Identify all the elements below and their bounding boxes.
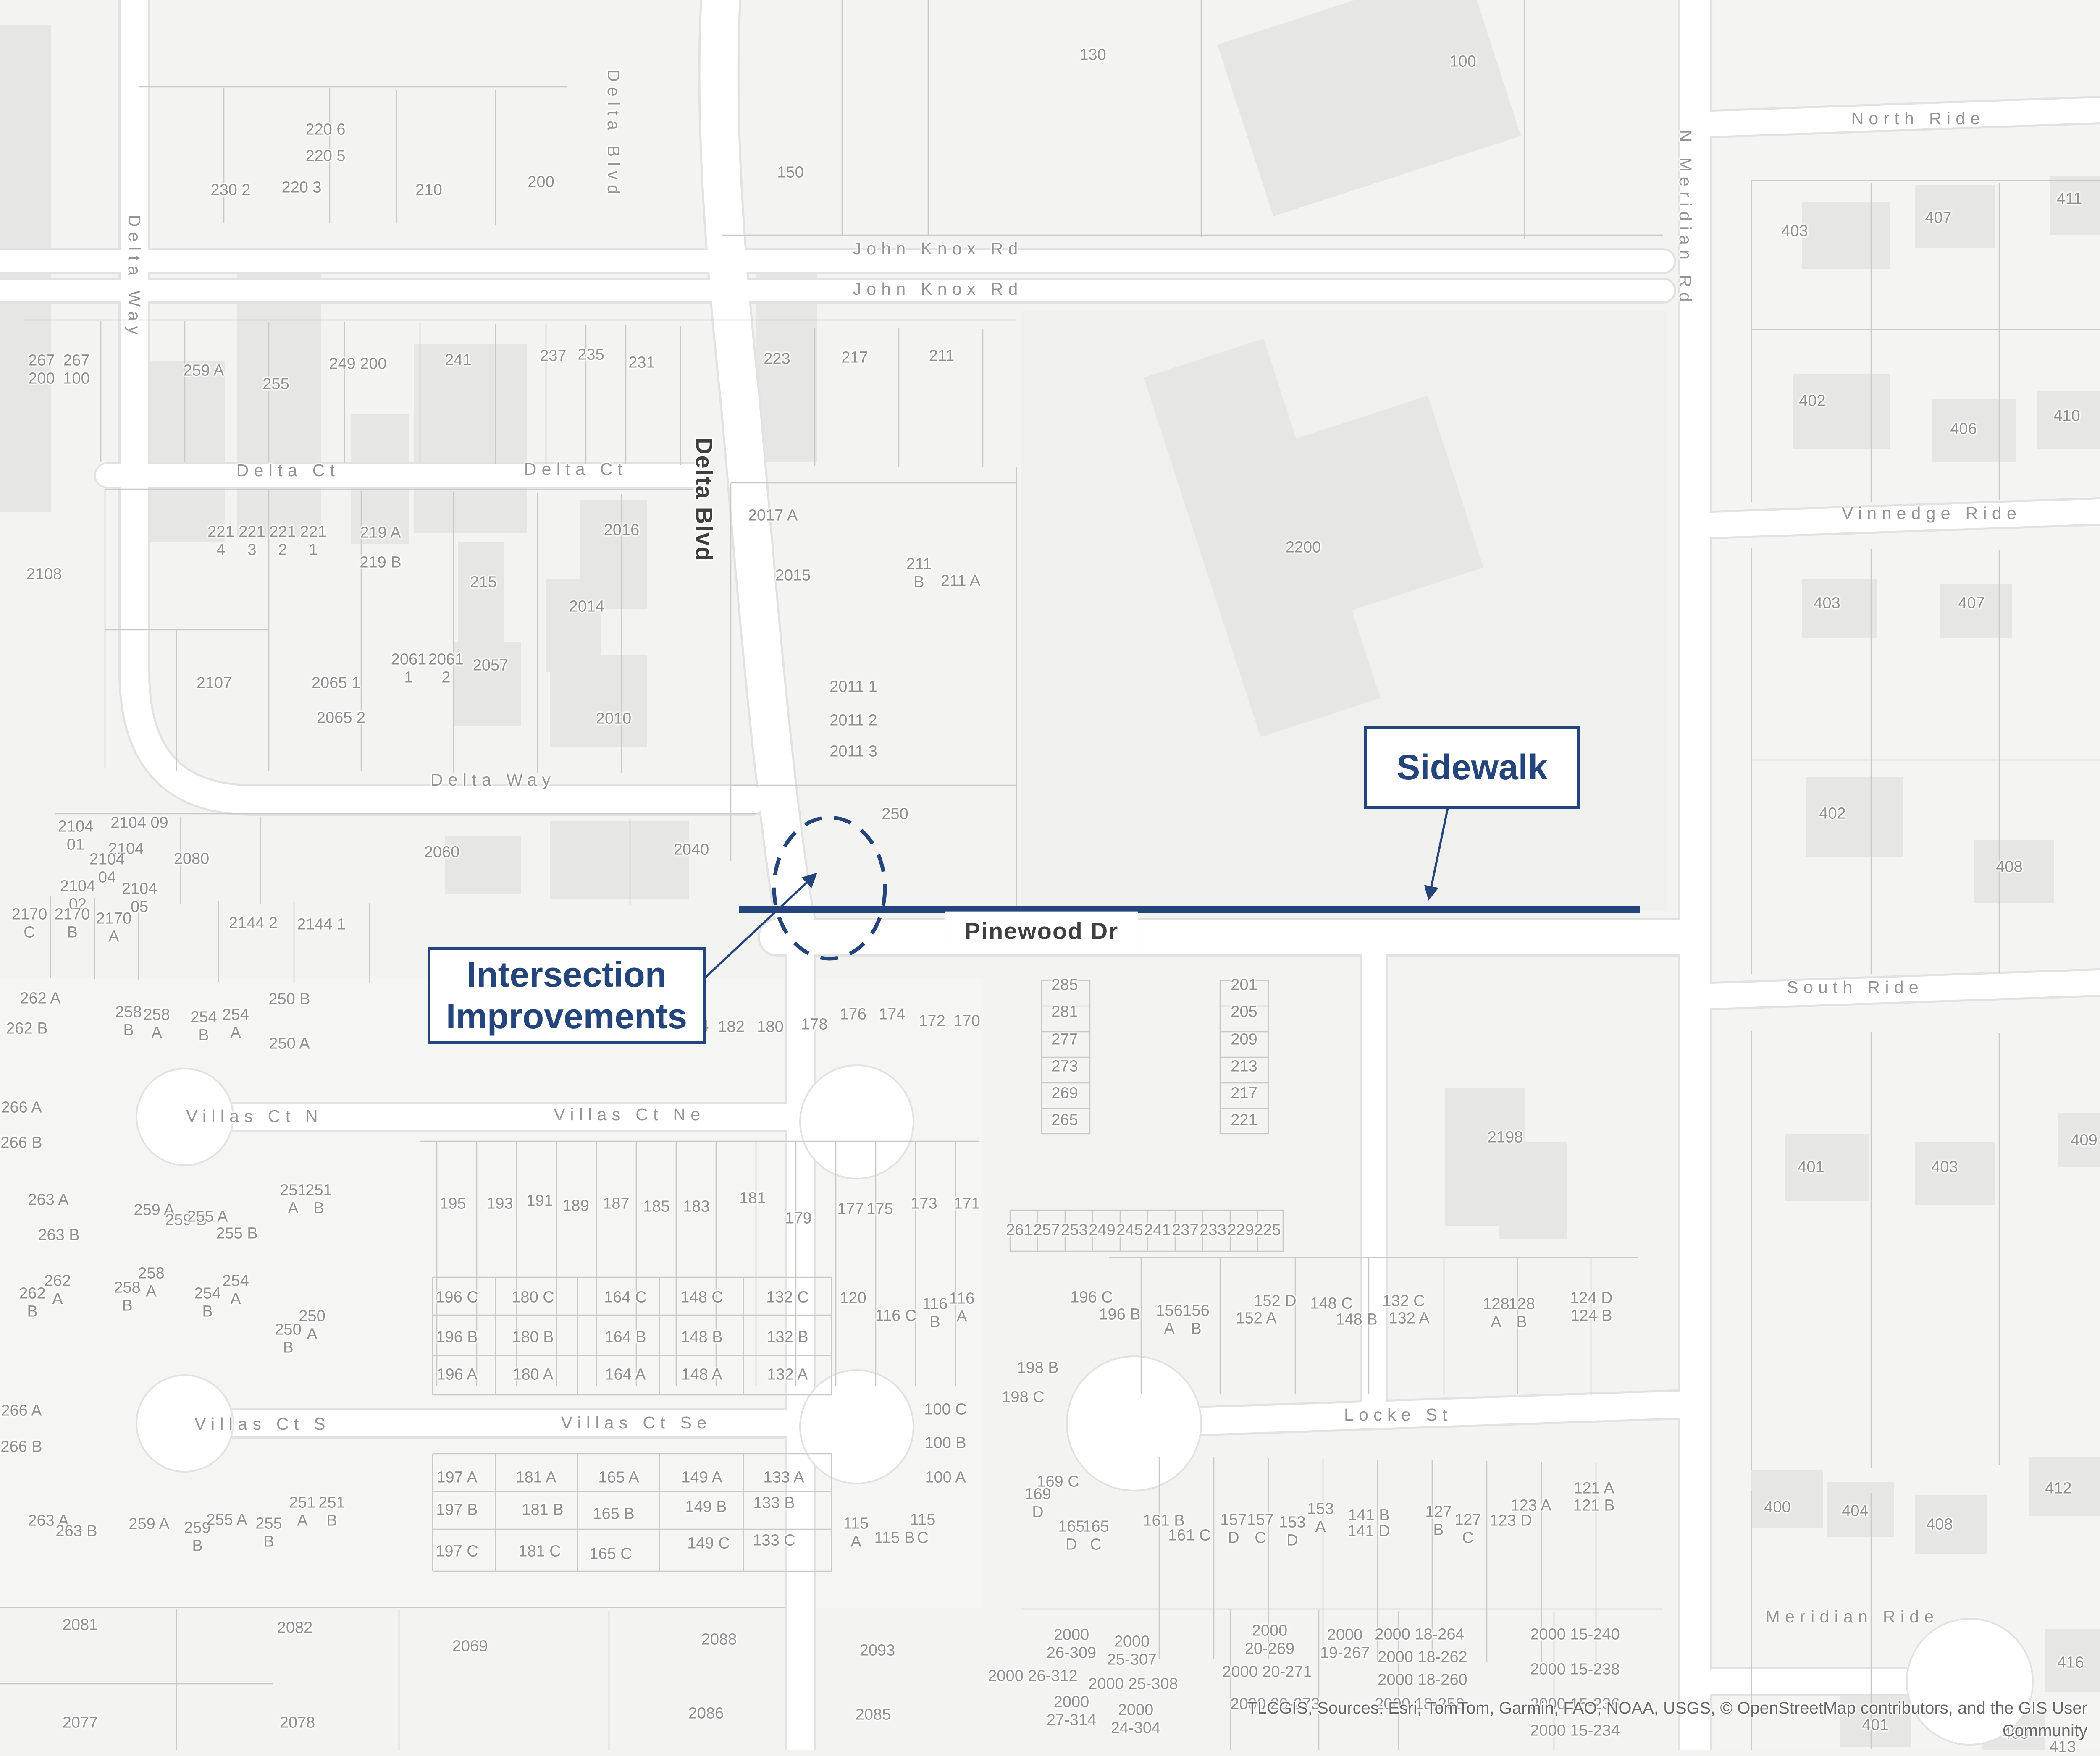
attribution-line1: TLCGIS, Sources: Esri, TomTom, Garmin, F… (1247, 1699, 2087, 1717)
parcel-label: 213 (1231, 1058, 1257, 1076)
parcel-label: 100 B (924, 1434, 966, 1452)
street-label: John Knox Rd (853, 280, 1023, 299)
parcel-label: 262 B (19, 1284, 45, 1320)
parcel-label: 100 A (925, 1469, 966, 1487)
parcel-label: 2107 (197, 674, 232, 692)
parcel-label: 198 B (1017, 1359, 1058, 1377)
parcel-label: 198 C (1002, 1389, 1044, 1407)
parcel-label: 273 (1051, 1058, 1078, 1076)
parcel-label: 127 B (1425, 1503, 1452, 1538)
parcel-label: 152 A (1236, 1310, 1276, 1328)
parcel-label: 197 B (436, 1501, 478, 1519)
parcel-label: 152 D (1254, 1292, 1296, 1310)
parcel-label: 220 5 (305, 147, 345, 165)
attribution-line2: Community (2003, 1722, 2087, 1740)
street-label: Villas Ct Se (561, 1413, 712, 1433)
parcel-label: 221 4 (207, 523, 234, 558)
map-attribution: TLCGIS, Sources: Esri, TomTom, Garmin, F… (995, 1697, 2087, 1742)
parcel-label: 261 (1006, 1221, 1032, 1240)
parcel-label: 2000 15-240 (1530, 1626, 1620, 1644)
parcel-label: 416 (2057, 1654, 2084, 1672)
parcel-label: 132 C (766, 1289, 808, 1307)
parcel-label: 149 C (687, 1535, 730, 1553)
parcel-label: 235 (577, 346, 604, 364)
parcel-label: 2060 (424, 844, 460, 862)
parcel-label: 124 D (1570, 1289, 1612, 1308)
parcel-label: 173 (911, 1195, 937, 1213)
parcel-label: 156 B (1183, 1302, 1209, 1337)
parcel-label: 164 A (605, 1366, 646, 1384)
parcel-label: 2000 18-260 (1378, 1671, 1467, 1689)
parcel-label: 149 B (685, 1498, 727, 1516)
parcel-label: 148 C (1310, 1295, 1352, 1313)
parcel-label: 164 B (604, 1329, 646, 1347)
parcel-label: 258 A (143, 1006, 170, 1041)
parcel-label: 2000 19-267 (1320, 1626, 1370, 1662)
parcel-label: 123 D (1489, 1512, 1532, 1530)
parcel-label: 176 (840, 1006, 866, 1024)
parcel-label: 180 C (512, 1289, 554, 1307)
parcel-label: 412 (2045, 1480, 2071, 1498)
parcel-label: 237 (1172, 1221, 1198, 1240)
parcel-label: 2000 25-307 (1107, 1633, 1157, 1668)
parcel-label: 171 (953, 1195, 980, 1213)
parcel-label: 277 (1051, 1031, 1078, 1049)
parcel-label: 211 A (941, 572, 980, 590)
parcel-label: 281 (1051, 1003, 1078, 1021)
parcel-label: 196 B (436, 1329, 478, 1347)
street-label: South Ride (1787, 978, 1924, 997)
parcel-label: 132 A (767, 1366, 808, 1384)
parcel-label: 2086 (688, 1705, 724, 1723)
parcel-label: 205 (1231, 1003, 1257, 1021)
parcel-label: 141 D (1347, 1523, 1390, 1541)
parcel-label: 259 A (129, 1515, 169, 1533)
parcel-label: 170 (953, 1012, 980, 1030)
parcel-label: 175 (866, 1200, 893, 1219)
parcel-label: 2010 (596, 710, 632, 728)
parcel-label: 128 B (1508, 1295, 1535, 1331)
parcel-label: 2017 A (748, 507, 798, 525)
parcel-label: 2057 (473, 657, 509, 675)
parcel-label: 2170 A (96, 909, 132, 945)
parcel-label: 116 C (875, 1307, 917, 1325)
parcel-label: 2078 (280, 1714, 315, 1732)
parcel-label: 263 B (38, 1227, 79, 1245)
parcel-label: 133 C (753, 1532, 795, 1550)
parcel-label: 2000 20-271 (1222, 1663, 1312, 1681)
parcel-label: 153 D (1279, 1513, 1305, 1549)
parcel-label: 225 (1254, 1221, 1281, 1240)
parcel-label: 2069 (452, 1638, 488, 1656)
parcel-label: 179 (785, 1210, 811, 1228)
parcel-label: 400 (1764, 1499, 1790, 1517)
parcel-label: 2104 09 (110, 814, 168, 832)
parcel-label: 267 100 (63, 351, 89, 387)
parcel-label: 128 A (1483, 1295, 1509, 1331)
parcel-label: 229 (1227, 1221, 1254, 1240)
parcel-label: 233 (1200, 1221, 1226, 1240)
parcel-label: 266 B (0, 1438, 42, 1456)
parcel-label: 2016 (604, 522, 640, 540)
parcel-label: 2040 (674, 841, 709, 859)
parcel-label: 262 A (20, 990, 60, 1008)
parcel-label: 2144 1 (297, 916, 346, 934)
parcel-label: 258 B (114, 1279, 140, 1314)
parcel-label: 169 D (1024, 1485, 1051, 1521)
parcel-label: 2093 (860, 1642, 895, 1660)
parcel-label: 403 (1781, 223, 1808, 241)
parcel-label: 189 (562, 1197, 589, 1215)
parcel-label: 115 C (910, 1511, 936, 1546)
parcel-label: 115 A (843, 1515, 869, 1550)
parcel-label: 180 B (512, 1329, 554, 1347)
parcel-label: 2065 1 (312, 674, 360, 692)
parcel-label: 187 (603, 1195, 629, 1213)
parcel-label: 220 3 (281, 179, 321, 197)
parcel-label: 411 (2057, 190, 2082, 208)
street-label: Delta Blvd (691, 438, 717, 562)
parcel-label: 2200 (1286, 539, 1321, 557)
parcel-label: 263 A (28, 1191, 68, 1209)
parcel-label: 165 C (1082, 1517, 1109, 1553)
parcel-label: 408 (1926, 1516, 1953, 1534)
parcel-label: 402 (1819, 805, 1845, 823)
parcel-label: 177 (837, 1200, 864, 1219)
parcel-label: 266 A (1, 1099, 42, 1117)
parcel-label: 2000 26-309 (1047, 1626, 1096, 1662)
parcel-label: 164 C (604, 1289, 646, 1307)
map-canvas[interactable]: 230 2220 6220 5220 3210200150130100267 2… (0, 0, 2100, 1750)
parcel-label: 2198 (1488, 1129, 1523, 1147)
street-label: N Meridian Rd (1675, 130, 1695, 307)
parcel-label: 255 B (255, 1515, 282, 1550)
parcel-label: 285 (1051, 976, 1078, 994)
parcel-label: 254 A (222, 1272, 249, 1308)
parcel-label: 165 C (589, 1545, 632, 1563)
parcel-label: 132 A (1389, 1310, 1429, 1328)
street-label: Villas Ct S (194, 1415, 331, 1434)
parcel-label: 120 (840, 1289, 866, 1308)
parcel-label: 245 (1116, 1221, 1143, 1240)
parcel-label: 2000 18-264 (1375, 1626, 1464, 1644)
parcel-label: 404 (1842, 1502, 1868, 1520)
parcel-label: 130 (1079, 46, 1106, 64)
parcel-label: 266 B (0, 1134, 42, 1152)
parcel-label: 221 3 (239, 523, 265, 558)
parcel-label: 217 (1231, 1085, 1257, 1103)
parcel-label: 197 A (436, 1469, 477, 1487)
parcel-label: 196 B (1099, 1306, 1140, 1324)
parcel-label: 157 D (1220, 1511, 1247, 1546)
parcel-label: 2061 1 (391, 650, 427, 686)
parcel-label: 2077 (63, 1714, 98, 1732)
parcel-label: 172 (919, 1012, 945, 1030)
parcel-label: 2082 (277, 1619, 313, 1637)
parcel-label: 262 A (44, 1272, 71, 1308)
parcel-label: 255 A (206, 1511, 247, 1529)
parcel-label: 165 B (593, 1505, 634, 1523)
parcel-label: 250 B (275, 1321, 301, 1356)
parcel-label: 255 (262, 375, 289, 393)
parcel-label: 200 (528, 173, 554, 191)
parcel-label: 2144 2 (229, 915, 278, 933)
parcel-label: 241 (445, 351, 471, 370)
parcel-label: 249 (1089, 1221, 1115, 1240)
intersection-improvements-callout: Intersection Improvements (428, 947, 706, 1044)
parcel-label: 2000 18-262 (1378, 1649, 1467, 1667)
parcel-label: 263 B (55, 1523, 97, 1541)
parcel-label: 2104 01 (58, 818, 94, 853)
parcel-label: 182 (718, 1018, 744, 1036)
parcel-label: 165 A (598, 1469, 639, 1487)
parcel-label: 401 (1798, 1158, 1824, 1177)
parcel-label: 116 B (922, 1295, 948, 1331)
parcel-label: 196 C (1070, 1289, 1113, 1307)
parcel-label: 100 C (924, 1401, 966, 1419)
parcel-label: 133 B (753, 1494, 795, 1512)
parcel-label: 133 A (763, 1469, 804, 1487)
parcel-label: 183 (683, 1198, 709, 1216)
parcel-label: 402 (1799, 392, 1825, 410)
street-label: North Ride (1851, 109, 1985, 128)
parcel-label: 409 (2071, 1132, 2097, 1150)
street-label: Delta Ct (524, 460, 628, 479)
parcel-label: 253 (1061, 1221, 1087, 1240)
parcel-label: 141 B (1348, 1507, 1389, 1525)
parcel-label: 148 B (681, 1329, 722, 1347)
parcel-label: 258 B (115, 1003, 142, 1039)
parcel-label: 254 B (190, 1008, 217, 1044)
parcel-label: 2014 (569, 598, 605, 616)
parcel-label: 255 B (216, 1225, 257, 1243)
street-label: Villas Ct N (186, 1107, 323, 1126)
parcel-label: 250 B (268, 991, 310, 1009)
parcel-label: 153 A (1307, 1500, 1333, 1536)
parcel-label: 121 B (1573, 1497, 1614, 1515)
parcel-label: 2000 26-312 (988, 1667, 1077, 1685)
parcel-label: 132 B (766, 1329, 808, 1347)
parcel-label: 196 A (436, 1366, 477, 1384)
parcel-label: 219 A (360, 524, 401, 542)
parcel-label: 269 (1051, 1085, 1078, 1103)
parcel-label: 267 200 (28, 351, 55, 387)
parcel-label: 181 C (518, 1543, 561, 1561)
parcel-label: 2170 B (55, 905, 90, 941)
parcel-label: 215 (470, 574, 496, 592)
parcel-label: 180 A (512, 1366, 553, 1384)
parcel-label: 403 (1931, 1158, 1958, 1177)
parcel-label: 2000 20-269 (1245, 1622, 1294, 1657)
parcel-label: 219 B (360, 554, 401, 572)
parcel-label: 100 (1449, 53, 1476, 71)
parcel-label: 230 2 (210, 181, 250, 199)
parcel-label: 211 (929, 347, 955, 365)
parcel-label: 185 (643, 1198, 669, 1216)
street-label: Vinnedge Ride (1842, 504, 2021, 523)
parcel-label: 2108 (26, 566, 62, 584)
street-label: Villas Ct Ne (554, 1105, 705, 1124)
intersection-callout-line2: Improvements (446, 996, 687, 1037)
parcel-label: 221 2 (269, 523, 296, 558)
parcel-label: 121 A (1573, 1480, 1614, 1498)
parcel-label: 2061 2 (428, 650, 464, 686)
parcel-label: 115 B (874, 1529, 915, 1547)
parcel-label: 181 (739, 1190, 766, 1208)
parcel-label: 116 A (949, 1289, 975, 1325)
parcel-label: 265 (1051, 1111, 1078, 1130)
sidewalk-callout: Sidewalk (1364, 726, 1580, 809)
parcel-label: 223 (764, 350, 790, 368)
parcel-label: 254 B (194, 1284, 220, 1320)
parcel-label: 124 B (1570, 1307, 1612, 1325)
street-label: Delta Way (124, 215, 144, 340)
parcel-label: 241 (1144, 1221, 1171, 1240)
parcel-label: 410 (2053, 407, 2080, 425)
parcel-label: 258 A (138, 1264, 164, 1300)
parcel-label: 2088 (701, 1631, 737, 1649)
map-labels: 230 2220 6220 5220 3210200150130100267 2… (0, 0, 2100, 1750)
parcel-label: 2011 3 (829, 743, 877, 761)
parcel-label: 148 A (681, 1366, 722, 1384)
street-label: Meridian Ride (1766, 1607, 1939, 1627)
parcel-label: 180 (757, 1018, 783, 1036)
parcel-label: 255 A (187, 1208, 228, 1226)
street-label: Pinewood Dr (946, 912, 1137, 951)
parcel-label: 262 B (6, 1020, 47, 1038)
parcel-label: 157 C (1247, 1511, 1273, 1546)
parcel-label: 407 (1958, 595, 1984, 613)
parcel-label: 251 B (318, 1494, 345, 1529)
parcel-label: 257 (1033, 1221, 1060, 1240)
parcel-label: 148 B (1336, 1311, 1377, 1329)
parcel-label: 2000 15-238 (1530, 1661, 1620, 1679)
parcel-label: 2011 1 (829, 678, 877, 696)
parcel-label: 178 (801, 1016, 827, 1034)
parcel-label: 250 (882, 805, 908, 823)
parcel-label: 2170 C (12, 905, 47, 941)
parcel-label: 201 (1231, 976, 1257, 994)
parcel-label: 251 B (305, 1181, 332, 1217)
parcel-label: 221 1 (300, 523, 326, 558)
street-label: Locke St (1344, 1405, 1452, 1425)
parcel-label: 259 A (183, 362, 224, 380)
intersection-callout-line1: Intersection (467, 954, 667, 996)
parcel-label: 191 (526, 1192, 553, 1210)
street-label: John Knox Rd (853, 239, 1023, 259)
parcel-label: 2011 2 (829, 712, 877, 730)
parcel-label: 2085 (856, 1706, 891, 1724)
street-label: Delta Blvd (604, 69, 623, 199)
parcel-label: 181 A (515, 1469, 556, 1487)
parcel-label: 408 (1996, 858, 2022, 876)
parcel-label: 165 D (1058, 1517, 1084, 1553)
parcel-label: 250 A (269, 1035, 310, 1053)
parcel-label: 2080 (174, 850, 210, 868)
parcel-label: 254 A (222, 1006, 249, 1041)
parcel-label: 403 (1814, 595, 1840, 613)
parcel-label: 266 A (1, 1402, 42, 1420)
parcel-label: 148 C (680, 1289, 723, 1307)
parcel-label: 209 (1231, 1031, 1257, 1049)
parcel-label: 2065 2 (317, 709, 365, 727)
parcel-label: 407 (1925, 209, 1951, 227)
parcel-label: 237 (540, 347, 566, 365)
parcel-label: 406 (1950, 420, 1977, 438)
parcel-label: 210 (415, 181, 442, 199)
parcel-label: 150 (777, 164, 803, 182)
parcel-label: 2081 (63, 1616, 98, 1634)
parcel-label: 149 A (681, 1469, 722, 1487)
parcel-label: 211 B (906, 555, 932, 591)
street-label: Delta Way (430, 771, 556, 790)
parcel-label: 193 (486, 1195, 513, 1213)
parcel-label: 132 C (1382, 1292, 1425, 1310)
parcel-label: 220 6 (305, 121, 345, 139)
parcel-label: 250 A (299, 1307, 325, 1343)
parcel-label: 251 A (289, 1494, 315, 1529)
parcel-label: 195 (439, 1195, 466, 1213)
parcel-label: 161 C (1168, 1527, 1210, 1545)
parcel-label: 249 200 (329, 355, 386, 373)
parcel-label: 127 C (1454, 1511, 1481, 1546)
sidewalk-callout-text: Sidewalk (1396, 747, 1548, 788)
street-label: Delta Ct (236, 461, 340, 480)
parcel-label: 156 A (1156, 1302, 1182, 1337)
parcel-label: 251 A (280, 1181, 306, 1217)
parcel-label: 217 (841, 349, 868, 367)
parcel-label: 181 B (522, 1501, 563, 1519)
parcel-label: 2015 (775, 567, 811, 585)
parcel-label: 231 (628, 354, 655, 372)
parcel-label: 2000 25-308 (1088, 1675, 1178, 1693)
parcel-label: 197 C (436, 1543, 478, 1561)
parcel-label: 221 (1231, 1111, 1257, 1130)
parcel-label: 174 (879, 1006, 905, 1024)
parcel-label: 196 C (436, 1289, 478, 1307)
